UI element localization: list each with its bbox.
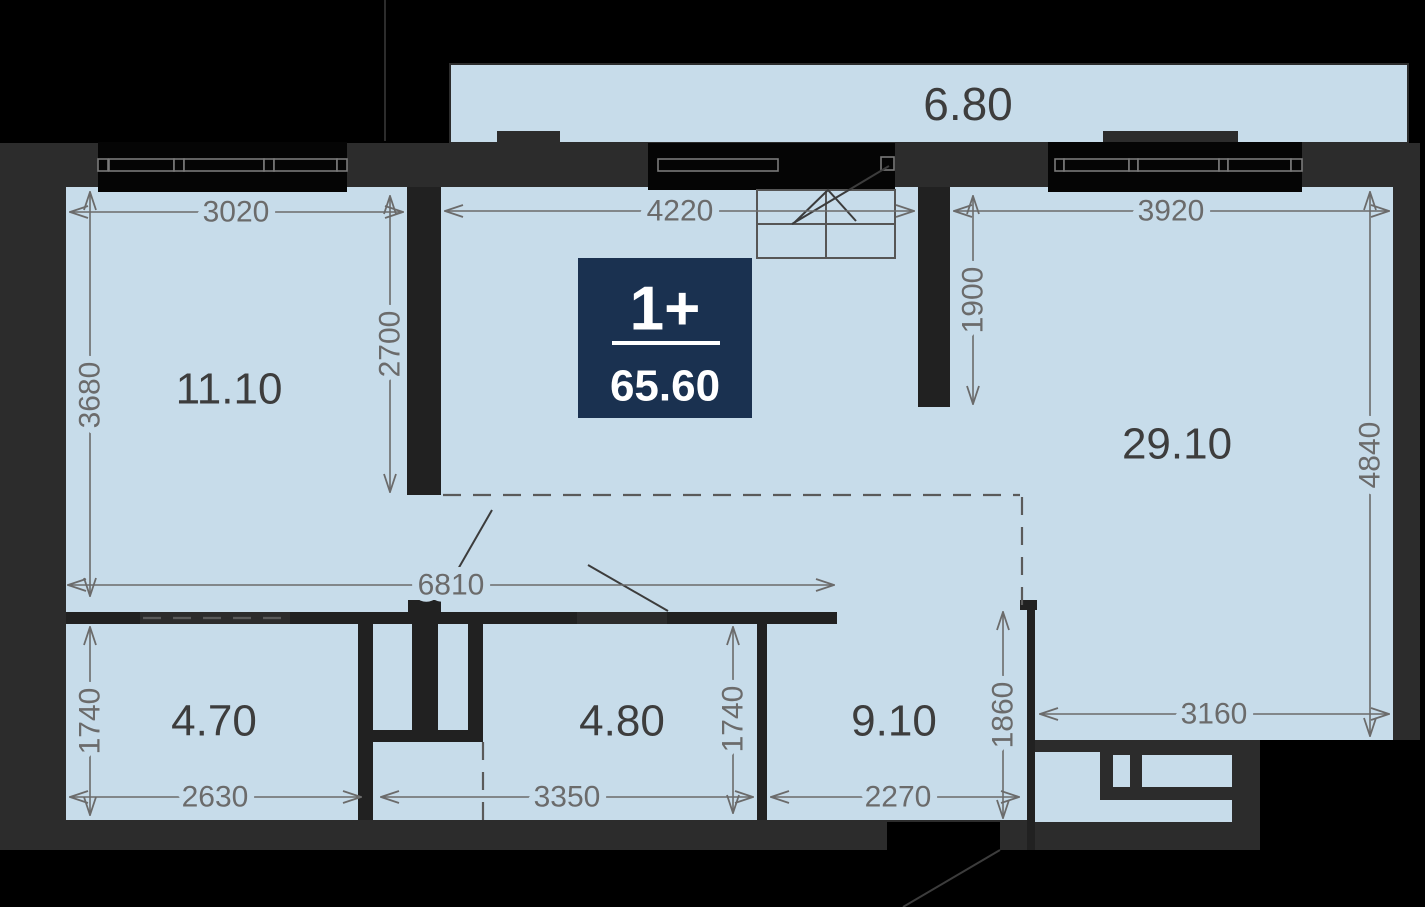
dim-label: 3680 [74,362,107,429]
dim-label: 2630 [182,781,249,814]
window-pane-icon [1064,159,1129,171]
wall-bottomleft-a [66,612,140,624]
corridor-floor-under-stub [918,407,950,612]
dim-label: 3920 [1138,195,1205,228]
closet-wall-right [468,624,483,742]
window-post-icon [98,159,108,171]
wall-pier [408,600,441,614]
kitchen-counter [1035,800,1232,822]
window-pane-icon [109,159,174,171]
dim-label: 3350 [534,781,601,814]
wall-bottomleft-b [290,612,577,624]
room-area-label: 4.70 [171,697,257,746]
wall-topleft-corridor [407,187,441,495]
window-post-icon [1291,159,1302,171]
window-pane-icon [184,159,264,171]
wall-hallway-kitchen [1027,608,1035,850]
balcony-area-label: 6.80 [923,78,1013,130]
window-post-icon [1129,159,1138,171]
window-post-icon [1055,159,1064,171]
dim-label: 1900 [957,267,990,334]
window-post-icon [174,159,184,171]
balcony: 6.80 [450,64,1408,143]
dim-label: 1740 [74,688,107,755]
closet-wall-left [358,624,373,820]
kitchen-cabinet [1142,755,1232,787]
balcony-pier [497,131,560,143]
wall-middle-hallway [757,612,767,820]
dim-label: 6810 [418,569,485,602]
window-post-icon [337,159,347,171]
dim-label: 1740 [717,686,750,753]
room-area-label: 11.10 [176,365,283,414]
wall-bottommiddle-top [667,612,837,624]
entrance-door-opening [887,822,1000,850]
window-pane-icon [1138,159,1219,171]
room-area-label: 29.10 [1122,420,1232,469]
unit-total-area: 65.60 [610,362,720,411]
closet-divider [412,624,438,730]
unit-badge: 1+ 65.60 [578,258,752,418]
vestibule-floor [373,742,483,820]
room-area-label: 4.80 [579,697,665,746]
window-post-icon [264,159,274,171]
floor-plan: 6.80 [0,0,1425,907]
closet-cell-floor [373,624,412,730]
dim-label: 3160 [1181,698,1248,731]
windows [98,142,1302,192]
dim-label: 2270 [865,781,932,814]
floor-plan-canvas: 6.80 [0,0,1425,907]
balcony-pier [1103,131,1238,143]
dim-label: 4220 [647,195,714,228]
dim-label: 3020 [203,196,270,229]
wall-stub-living [918,187,950,407]
dim-label: 2700 [374,311,407,378]
room-area-label: 9.10 [851,697,937,746]
window-post-icon [1219,159,1228,171]
kitchen-cabinet [1113,755,1130,787]
window-pane-icon [658,159,778,171]
dim-label: 1860 [987,682,1020,749]
window-pane-icon [1228,159,1291,171]
window-pane-icon [274,159,337,171]
dim-label: 4840 [1354,422,1387,489]
closet-cell-floor [438,624,468,730]
closet-bottom-bar [373,730,483,742]
unit-rooms-label: 1+ [630,275,701,344]
